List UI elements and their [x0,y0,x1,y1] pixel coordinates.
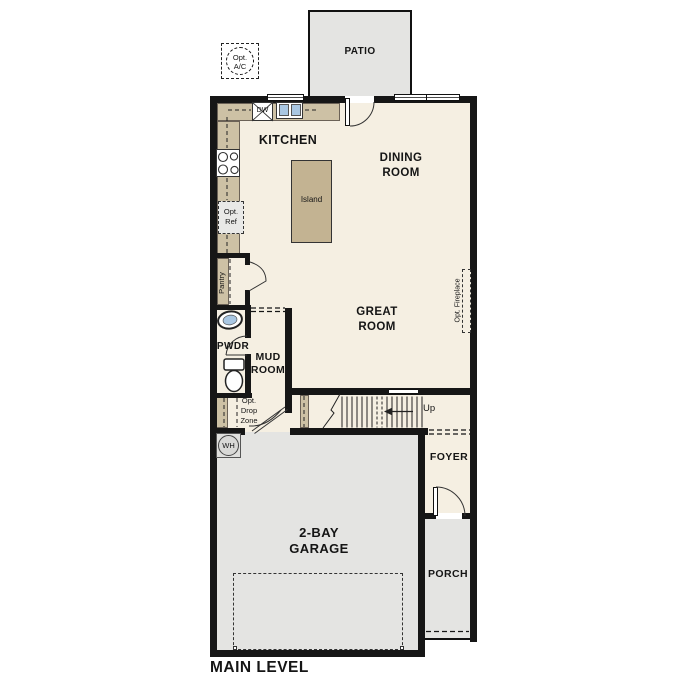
patio-door-leaf [345,98,350,126]
sink-basin-right [291,104,301,116]
pantry-label: Pantry [217,263,227,303]
stair-knee-wall [300,395,309,428]
main-level-label: MAIN LEVEL [210,658,340,677]
wall-bottom-garage [210,650,425,657]
opt-drop-zone-label: Opt. Drop Zone [236,396,262,427]
window-dining-right [426,94,460,101]
floor-plan: PATIO Opt. A/C KITCHEN DW DINING ROOM GR… [0,0,687,687]
foyer-floor [425,432,470,513]
garage-label: 2-BAY GARAGE [283,525,355,557]
window-kitchen [267,94,304,101]
sink-basin-left [279,104,289,116]
garage-door-jamb-right [400,646,404,650]
mud-room-label: MUD ROOM [246,351,290,377]
dining-room-label: DINING ROOM [373,151,429,180]
wall-stairhall-bottom-right [290,428,428,435]
wall-left [210,96,217,657]
wall-pantry-top [210,253,250,258]
garage-door-jamb-left [233,646,237,650]
wall-right [470,96,477,642]
garage-door-dashed [233,573,403,650]
porch-edge-line [425,638,470,640]
drop-zone-bench [216,397,228,428]
opt-ac-label: Opt. A/C [222,53,258,71]
opt-fireplace-label: Opt. Fireplace [455,269,464,333]
water-heater-label: WH [217,441,240,450]
patio-label: PATIO [330,46,390,59]
dishwasher-label: DW [252,107,273,116]
wall-garage-right [418,428,425,657]
window-dining-left [394,94,427,101]
main-floor [217,103,470,432]
wall-pantry-stub-top [245,255,250,265]
great-room-label: GREAT ROOM [349,305,405,334]
wall-foyer-bottom-right [462,513,477,519]
front-door-leaf [433,487,438,516]
range-stove [216,149,240,177]
porch-label: PORCH [426,568,470,581]
island-label: Island [291,195,332,205]
kitchen-label: KITCHEN [248,133,328,149]
foyer-label: FOYER [427,451,471,464]
wall-pwdr-top [210,305,250,310]
wall-greatroom-bottom [285,388,477,395]
wall-pwdr-right-upper [245,305,251,338]
front-door-opening [436,513,462,519]
kitchen-counter-left [217,121,240,257]
up-label: Up [423,403,441,415]
opt-ref-label: Opt. Ref [218,207,244,226]
stair-railing [389,389,418,394]
